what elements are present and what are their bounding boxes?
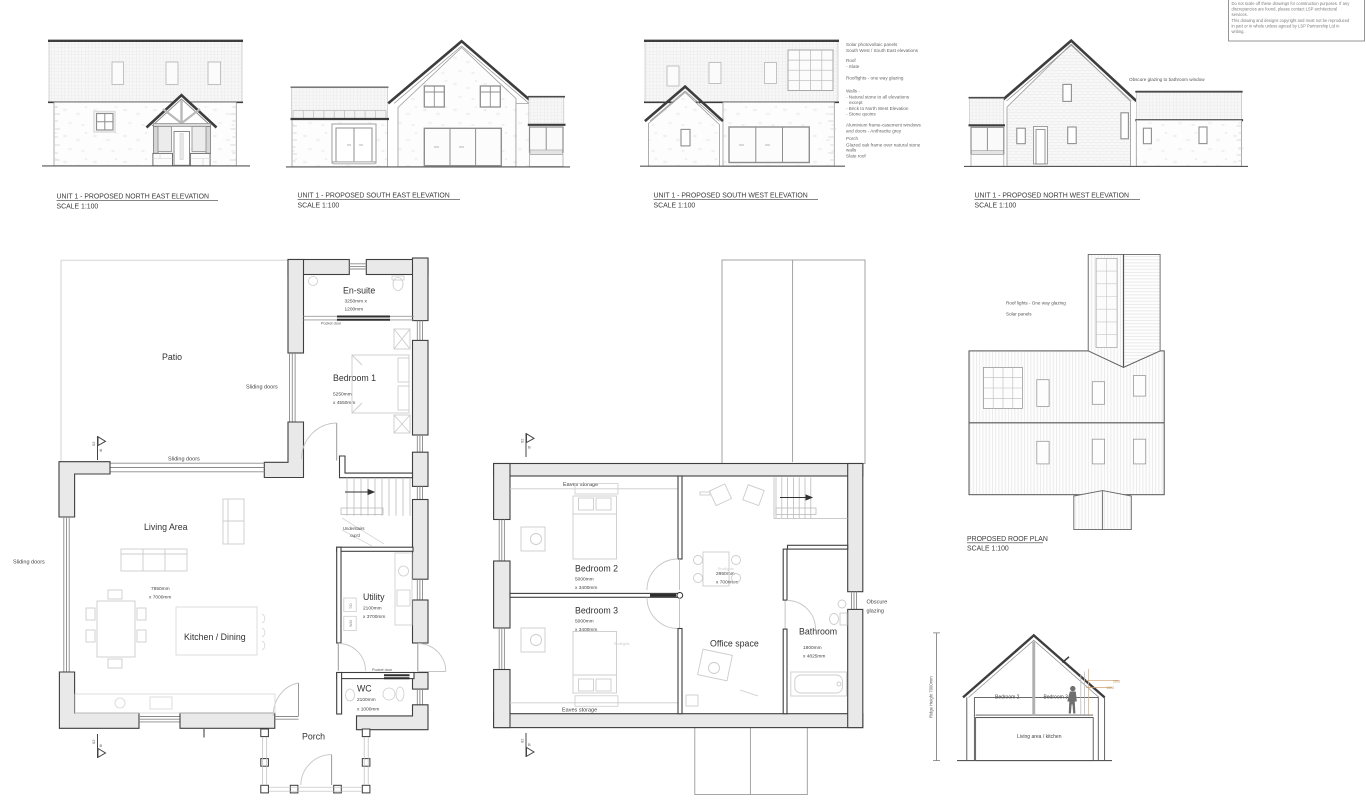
svg-text:B: B [528,445,531,450]
svg-text:Kitchen / Dining: Kitchen / Dining [184,632,246,642]
svg-text:Do not scale off these drawing: Do not scale off these drawings for cons… [1232,1,1351,6]
svg-text:Pocket door: Pocket door [321,322,342,326]
svg-text:Roof: Roof [846,58,856,63]
svg-text:02: 02 [91,739,96,744]
svg-text:- Brick to North West Elevatio: - Brick to North West Elevation [846,106,909,111]
svg-text:except: except [849,100,863,105]
svg-text:UNIT 1 - PROPOSED NORTH EAST E: UNIT 1 - PROPOSED NORTH EAST ELEVATION [57,194,210,201]
svg-text:- Stone quoins: - Stone quoins [846,112,876,117]
svg-text:T/D: T/D [349,603,353,609]
svg-text:5000mm: 5000mm [575,619,594,625]
svg-text:7850mm: 7850mm [151,586,170,592]
svg-text:5000mm: 5000mm [575,577,594,583]
svg-text:Roof lights - One way glazing: Roof lights - One way glazing [1006,301,1066,306]
svg-text:glazing: glazing [867,609,884,615]
svg-text:En-suite: En-suite [343,286,375,296]
svg-text:B: B [100,743,103,748]
svg-text:2200: 2200 [1113,679,1120,683]
svg-text:WC: WC [357,684,372,694]
svg-text:B: B [100,448,103,453]
svg-text:UNIT 1 - PROPOSED NORTH WEST E: UNIT 1 - PROPOSED NORTH WEST ELEVATION [975,193,1129,200]
svg-text:Living Area: Living Area [144,522,188,532]
svg-text:Utility: Utility [363,592,385,602]
svg-text:Bedroom 3: Bedroom 3 [575,606,618,616]
svg-text:Pocket door: Pocket door [372,668,393,672]
svg-text:SCALE 1:100: SCALE 1:100 [967,546,1009,553]
svg-text:W/M: W/M [349,620,353,627]
svg-text:Sliding doors: Sliding doors [13,560,45,566]
svg-text:Rooflights: Rooflights [614,642,630,646]
svg-text:SCALE 1:100: SCALE 1:100 [975,203,1017,210]
svg-text:Rooflights - one way glazing: Rooflights - one way glazing [846,76,904,81]
svg-text:Sliding doors: Sliding doors [168,457,200,463]
svg-text:- Slate: - Slate [846,64,860,69]
svg-text:x 4825mm: x 4825mm [803,654,825,660]
svg-text:services.: services. [1232,12,1248,17]
svg-text:Slate roof: Slate roof [846,153,866,158]
svg-text:UNIT 1 - PROPOSED SOUTH EAST E: UNIT 1 - PROPOSED SOUTH EAST ELEVATION [298,193,450,200]
svg-text:Porch: Porch [302,732,325,742]
svg-text:02: 02 [520,738,525,743]
svg-text:SCALE 1:100: SCALE 1:100 [654,203,696,210]
svg-text:SCALE 1:100: SCALE 1:100 [57,204,99,211]
svg-text:- Natural stone to all elevati: - Natural stone to all elevations [846,94,910,99]
svg-text:Living area / kitchen: Living area / kitchen [1017,734,1062,740]
svg-text:Aluminium frame-casement windo: Aluminium frame-casement windows [846,123,922,128]
svg-text:Glazed oak frame over natural: Glazed oak frame over natural stone [846,143,921,148]
svg-text:02: 02 [520,438,525,443]
svg-text:Ridge Height 7000mm: Ridge Height 7000mm [929,676,934,718]
svg-text:x 3400mm: x 3400mm [575,627,597,633]
svg-text:Bedroom 3: Bedroom 3 [1044,694,1069,700]
svg-text:and doors - Anthracite grey: and doors - Anthracite grey [846,128,902,133]
svg-text:3250mm x: 3250mm x [345,298,368,304]
svg-text:Solar photovoltaic panels: Solar photovoltaic panels [846,42,898,47]
svg-text:B: B [528,742,531,747]
svg-text:Walls -: Walls - [846,89,860,94]
svg-text:1200mm: 1200mm [345,306,364,312]
svg-text:1500: 1500 [1107,686,1114,690]
svg-text:Solar panels: Solar panels [1006,312,1032,317]
svg-text:Obscure glazing to bathroom wi: Obscure glazing to bathroom window [1129,77,1205,82]
svg-text:Bathroom: Bathroom [799,627,837,637]
svg-text:UNIT 1 - PROPOSED SOUTH WEST E: UNIT 1 - PROPOSED SOUTH WEST ELEVATION [654,193,808,200]
svg-text:2100mm: 2100mm [363,606,382,612]
svg-text:discrepancies are found, pleas: discrepancies are found, please contact … [1232,7,1338,12]
svg-text:2100mm: 2100mm [357,697,376,703]
svg-text:Patio: Patio [162,352,182,362]
svg-text:in part or in whole unless agr: in part or in whole unless agreed by LSP… [1232,23,1341,28]
svg-text:02: 02 [91,441,96,446]
svg-text:Understairs: Understairs [343,526,364,531]
svg-text:South West / South East elevat: South West / South East elevations [846,48,919,53]
svg-text:This drawing and designs copyr: This drawing and designs copyright and m… [1232,18,1351,23]
svg-text:Bedroom 1: Bedroom 1 [333,373,376,383]
svg-text:Porch: Porch [846,136,858,141]
svg-text:5250mm: 5250mm [333,392,352,398]
svg-text:Eaves storage: Eaves storage [562,708,597,714]
svg-text:Bedroom 2: Bedroom 2 [995,694,1020,700]
svg-text:x 3700mm: x 3700mm [363,614,385,620]
svg-text:SCALE 1:100: SCALE 1:100 [298,203,340,210]
svg-text:Eaves storage: Eaves storage [563,482,598,488]
svg-text:Office space: Office space [710,639,759,649]
svg-text:1800mm: 1800mm [803,645,822,651]
svg-text:PROPOSED ROOF PLAN: PROPOSED ROOF PLAN [967,536,1048,543]
svg-text:Sliding doors: Sliding doors [246,385,278,391]
svg-text:x 1000mm: x 1000mm [357,707,379,713]
svg-text:Bedroom 2: Bedroom 2 [575,564,618,574]
svg-text:walls: walls [846,148,857,153]
svg-text:Rooflights: Rooflights [718,567,734,571]
svg-text:writing.: writing. [1232,29,1245,34]
svg-text:cup'd: cup'd [350,533,361,538]
svg-text:x 7000mm: x 7000mm [149,595,171,601]
svg-text:Obscure: Obscure [867,600,888,606]
svg-text:x 3400mm: x 3400mm [575,585,597,591]
